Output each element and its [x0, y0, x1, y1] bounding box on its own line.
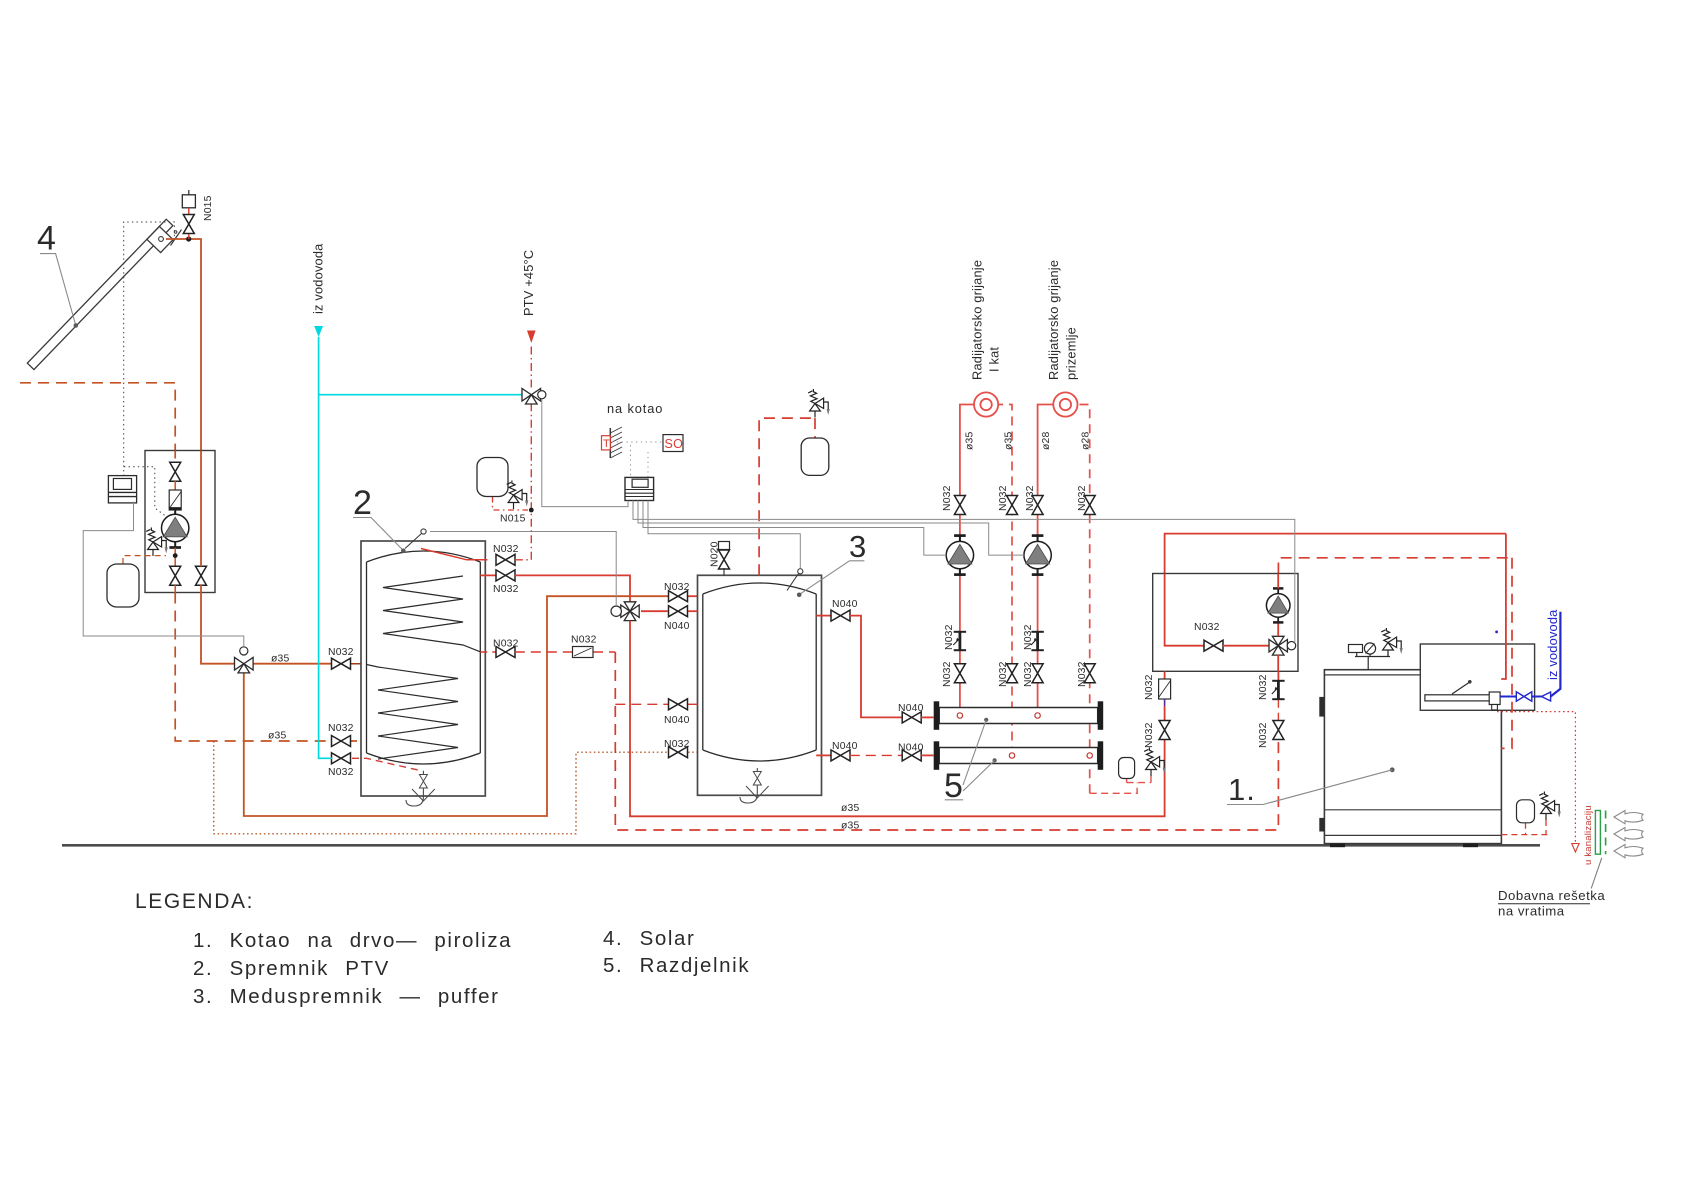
svg-text:N032: N032	[944, 624, 955, 650]
svg-text:N032: N032	[493, 584, 519, 595]
svg-text:N032: N032	[942, 661, 953, 687]
svg-text:PTV +45°C: PTV +45°C	[521, 250, 536, 316]
svg-text:I kat: I kat	[987, 347, 1002, 372]
svg-text:N032: N032	[328, 647, 354, 658]
svg-text:iz vodovoda: iz vodovoda	[311, 243, 326, 314]
svg-text:N040: N040	[664, 715, 690, 726]
svg-text:N040: N040	[664, 621, 690, 632]
svg-text:N032: N032	[493, 544, 519, 555]
svg-text:ø35: ø35	[268, 731, 287, 742]
svg-text:iz vodovoda: iz vodovoda	[1545, 609, 1560, 680]
svg-text:N032: N032	[1077, 661, 1088, 687]
svg-text:N040: N040	[832, 741, 858, 752]
svg-text:N032: N032	[1077, 485, 1088, 511]
svg-text:5. Razdjelnik: 5. Razdjelnik	[603, 954, 750, 977]
svg-text:ø35: ø35	[1004, 431, 1015, 450]
svg-text:u kanalizaciju: u kanalizaciju	[1583, 805, 1594, 865]
svg-text:N015: N015	[500, 514, 526, 525]
svg-text:N032: N032	[493, 639, 519, 650]
svg-text:N032: N032	[1144, 722, 1155, 748]
svg-text:2: 2	[353, 484, 373, 522]
svg-text:N032: N032	[1025, 485, 1036, 511]
svg-text:1. Kotao na drvo— piroliza: 1. Kotao na drvo— piroliza	[193, 929, 512, 952]
svg-text:T: T	[603, 438, 610, 450]
svg-text:5: 5	[944, 767, 964, 805]
svg-text:N032: N032	[942, 485, 953, 511]
svg-text:N032: N032	[1023, 624, 1034, 650]
svg-text:N032: N032	[571, 635, 597, 646]
svg-text:N032: N032	[1194, 622, 1220, 633]
svg-text:N040: N040	[898, 743, 924, 754]
svg-text:N040: N040	[832, 599, 858, 610]
svg-text:N032: N032	[328, 723, 354, 734]
svg-text:N032: N032	[328, 767, 354, 778]
svg-text:N032: N032	[998, 661, 1009, 687]
svg-text:N032: N032	[664, 582, 690, 593]
svg-text:Dobavna rešetka: Dobavna rešetka	[1498, 888, 1605, 903]
svg-text:prizemlje: prizemlje	[1064, 327, 1079, 380]
svg-text:N015: N015	[203, 195, 214, 221]
svg-text:3: 3	[849, 529, 867, 564]
svg-text:ø35: ø35	[271, 654, 290, 665]
svg-text:ø28: ø28	[1041, 431, 1052, 450]
svg-text:Radijatorsko grijanje: Radijatorsko grijanje	[970, 260, 985, 380]
svg-text:2. Spremnik PTV: 2. Spremnik PTV	[193, 957, 390, 980]
svg-text:1.: 1.	[1228, 772, 1256, 807]
svg-text:ø35: ø35	[841, 803, 860, 814]
svg-text:N032: N032	[664, 739, 690, 750]
svg-text:N032: N032	[998, 485, 1009, 511]
svg-text:na kotao: na kotao	[607, 401, 663, 416]
svg-text:N032: N032	[1023, 661, 1034, 687]
svg-text:ø28: ø28	[1081, 431, 1092, 450]
svg-text:LEGENDA:: LEGENDA:	[135, 890, 254, 913]
svg-text:N040: N040	[898, 703, 924, 714]
svg-text:3. Meduspremnik — puffer: 3. Meduspremnik — puffer	[193, 985, 500, 1008]
svg-text:N020: N020	[710, 541, 721, 567]
svg-text:N032: N032	[1144, 674, 1155, 700]
svg-text:N032: N032	[1258, 722, 1269, 748]
svg-text:SO: SO	[665, 437, 684, 451]
svg-text:na vratima: na vratima	[1498, 904, 1565, 919]
svg-text:ø35: ø35	[841, 821, 860, 832]
svg-text:4: 4	[37, 220, 57, 258]
svg-text:ø35: ø35	[965, 431, 976, 450]
svg-text:4. Solar: 4. Solar	[603, 927, 695, 950]
svg-text:N032: N032	[1258, 674, 1269, 700]
svg-text:Radijatorsko grijanje: Radijatorsko grijanje	[1046, 260, 1061, 380]
